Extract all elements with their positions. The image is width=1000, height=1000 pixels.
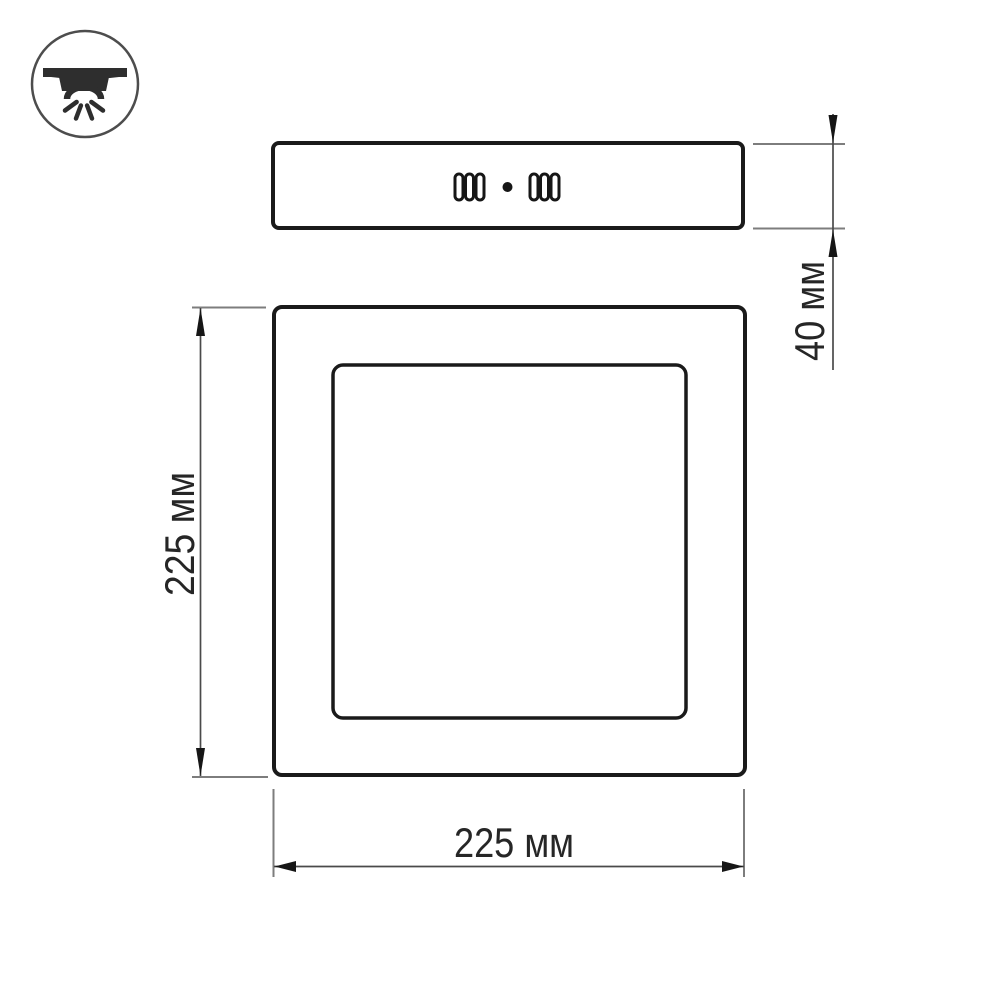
vent-slot [476,174,484,200]
arrowhead-up [829,230,838,258]
downlight-type-icon [32,31,138,137]
vent-slot-group-left [455,174,484,200]
arrowhead-down [829,115,838,143]
vent-slot [551,174,559,200]
dimension-width: 225 мм [274,789,745,877]
dimension-label-width: 225 мм [454,819,574,866]
arrowhead-right [722,861,744,872]
arrowhead-down [196,748,205,776]
vent-slot [466,174,474,200]
dimension-label-side: 225 мм [156,472,203,596]
arrowhead-up [196,308,205,336]
arrowhead-left [275,861,297,872]
front-view [274,307,745,775]
dimension-label-height: 40 мм [786,261,833,361]
icon-ceiling-flange [43,68,127,78]
dimension-height: 40 мм [753,114,845,370]
side-view [273,143,743,228]
led-panel-dimension-diagram: 40 мм 225 мм 225 мм [0,0,1000,1000]
diagram-canvas: 40 мм 225 мм 225 мм [0,0,1000,1000]
vent-slot [541,174,549,200]
front-view-diffuser [333,365,686,718]
center-screw-dot [503,182,513,192]
dimension-side: 225 мм [156,308,268,778]
vent-slot [455,174,463,200]
vent-slot-group-right [530,174,559,200]
vent-slot [530,174,538,200]
